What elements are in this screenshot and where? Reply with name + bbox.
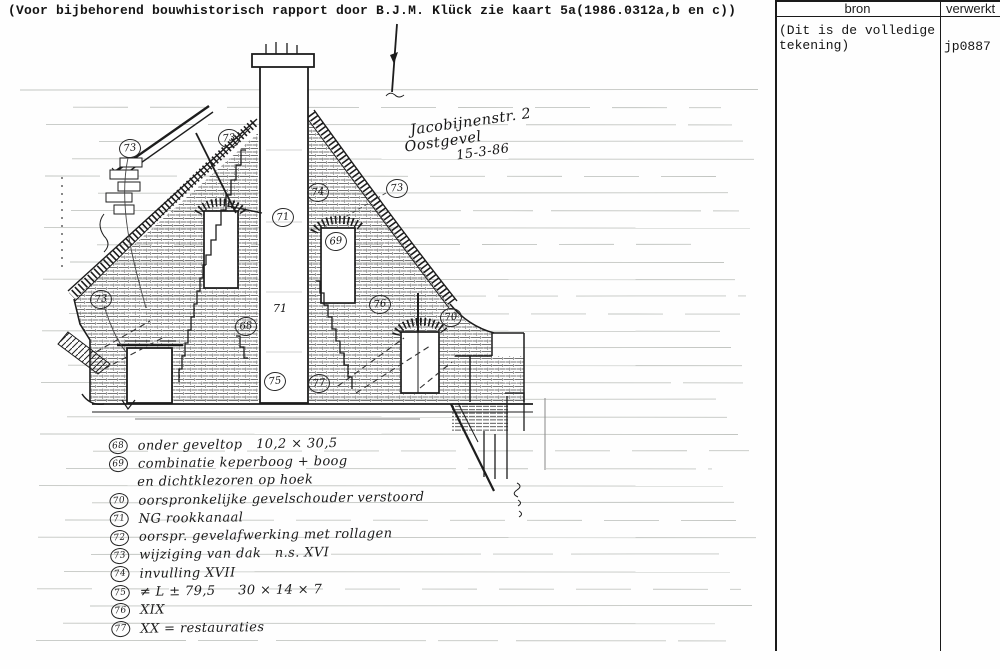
legend-item-number: 75 (110, 584, 131, 602)
legend-item-text: oorspr. gevelafwerking met rollagen (139, 526, 393, 545)
legend-item-number: 69 (108, 456, 129, 474)
table-header-rule (776, 16, 1000, 17)
legend-item-text: wijziging van dak n.s. XVI (139, 546, 329, 564)
legend-item-text: combinatie keperboog + boog (138, 454, 348, 472)
legend-item-text: invulling XVII (139, 565, 235, 581)
legend-item-number: 77 (111, 620, 132, 638)
scanned-archive-sheet: (Voor bijbehorend bouwhistorisch rapport… (0, 0, 1000, 669)
legend-item-text: oorspronkelijke gevelschouder verstoord (138, 489, 424, 508)
legend-item-number: 76 (110, 602, 131, 620)
margin-dots (61, 177, 63, 267)
legend-item-text: XIX (140, 603, 165, 618)
drawing-label: 71 (273, 302, 287, 315)
table-vertical-rule (940, 0, 941, 651)
column-header-verwerkt: verwerkt (941, 1, 1000, 16)
verwerkt-cell: jp0887 (944, 39, 991, 54)
legend-list: 68onder geveltop 10,2 × 30,569combinatie… (109, 433, 427, 639)
column-header-bron: bron (776, 1, 939, 16)
legend-item-number: 70 (109, 492, 130, 510)
legend-item-text: ≠ L ± 79,5 30 × 14 × 7 (140, 582, 323, 600)
legend-item-number: 72 (109, 529, 130, 547)
legend-item-text: XX = restauraties (140, 620, 264, 637)
ruin-fragment (100, 158, 142, 252)
legend-item-number: 73 (110, 547, 131, 565)
table-vertical-rule (775, 0, 777, 651)
bron-cell: (Dit is de volledige tekening) (779, 24, 943, 53)
legend-item-number: 68 (108, 437, 129, 455)
legend-item-number: 71 (109, 510, 130, 528)
legend-item-text: NG rookkanaal (139, 510, 244, 526)
legend-item-text: onder geveltop 10,2 × 30,5 (138, 436, 338, 454)
legend-item-number: 74 (110, 565, 131, 583)
north-arrow-icon (386, 24, 404, 97)
